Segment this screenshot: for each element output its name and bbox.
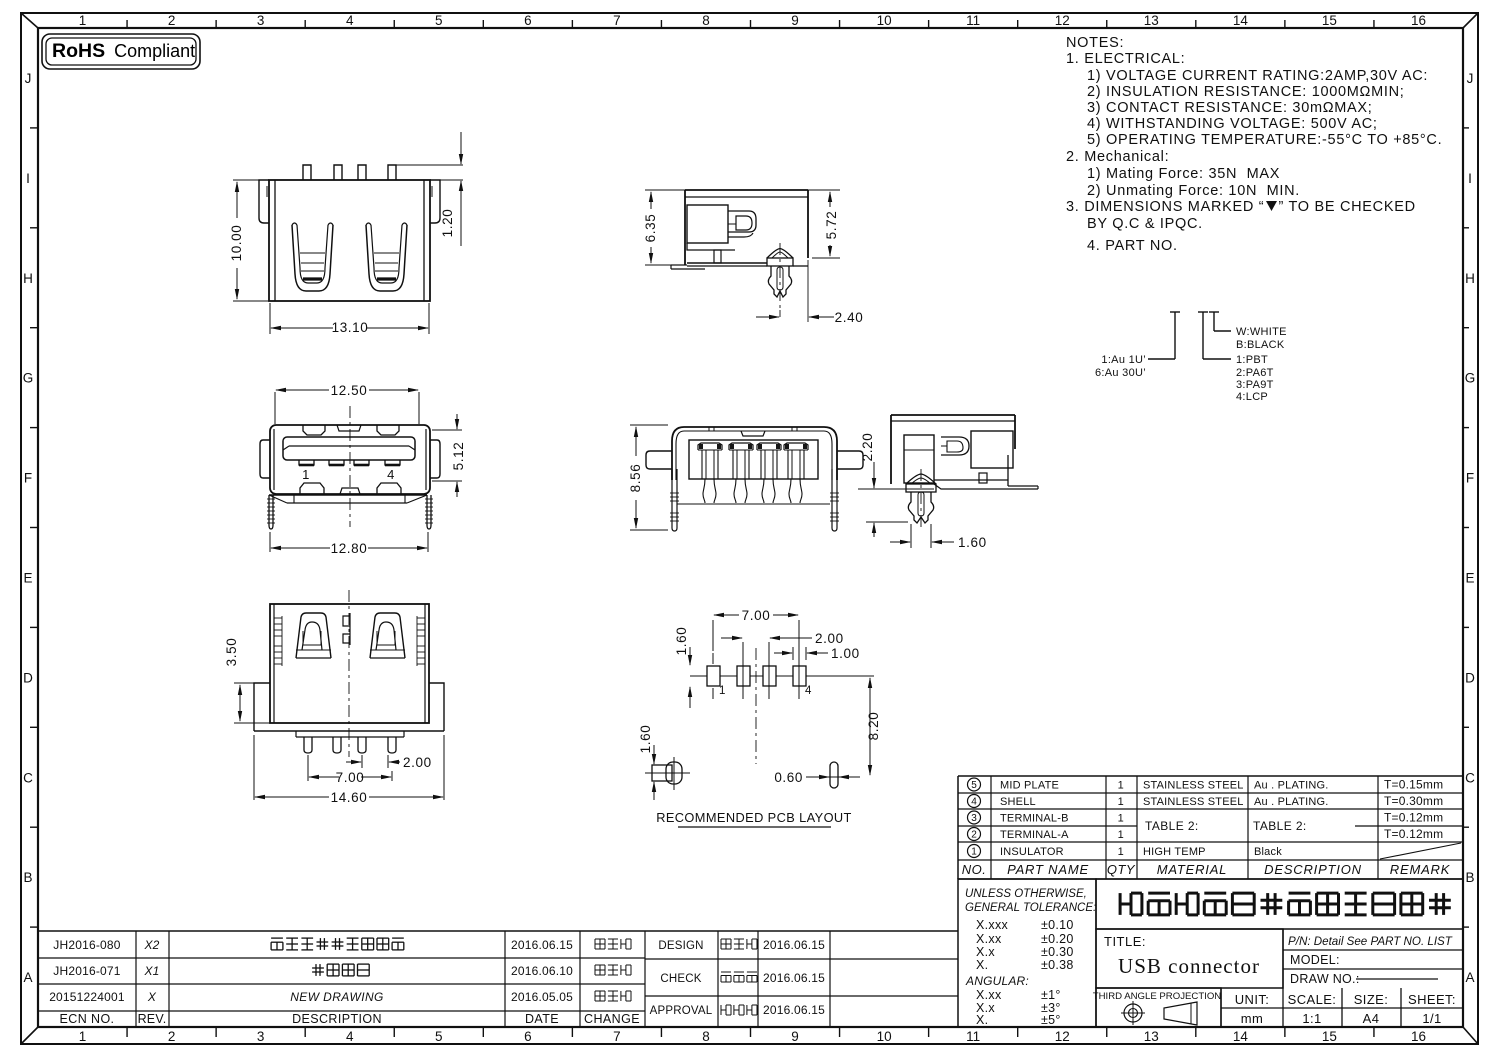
svg-text:BY Q.C & IPQC.: BY Q.C & IPQC. (1087, 216, 1203, 232)
svg-text:7: 7 (613, 1029, 621, 1044)
svg-text:NOTES:: NOTES: (1066, 35, 1124, 51)
svg-text:14.60: 14.60 (331, 790, 368, 805)
svg-text:1: 1 (971, 847, 977, 858)
svg-text:THIRD ANGLE PROJECTION: THIRD ANGLE PROJECTION (1093, 991, 1222, 1002)
svg-text:1.00: 1.00 (831, 646, 860, 661)
svg-text:2016.06.15: 2016.06.15 (763, 971, 825, 985)
svg-text:1: 1 (1118, 813, 1125, 825)
svg-text:14: 14 (1233, 13, 1249, 28)
svg-text:12.50: 12.50 (331, 383, 368, 398)
svg-text:2016.06.10: 2016.06.10 (511, 964, 573, 978)
svg-text:7: 7 (613, 13, 621, 28)
svg-text:20151224001: 20151224001 (49, 990, 125, 1004)
svg-text:0.60: 0.60 (774, 770, 803, 785)
svg-text:3. DIMENSIONS MARKED “ ” TO: 3. DIMENSIONS MARKED “ ” TO BE CHECKED (1066, 199, 1416, 215)
svg-text:5: 5 (435, 13, 443, 28)
svg-text:±0.38: ±0.38 (1041, 958, 1074, 972)
svg-text:B: B (23, 870, 32, 885)
svg-text:MODEL:: MODEL: (1290, 953, 1340, 967)
svg-text:4: 4 (387, 467, 395, 482)
svg-text:D: D (23, 670, 33, 685)
svg-text:1: 1 (1118, 846, 1125, 858)
svg-text:E: E (23, 570, 32, 585)
svg-text:15: 15 (1322, 1029, 1337, 1044)
svg-text:X1: X1 (143, 964, 159, 978)
svg-text:J: J (1467, 71, 1474, 86)
svg-text:10: 10 (877, 13, 892, 28)
svg-text:SCALE:: SCALE: (1288, 992, 1337, 1007)
svg-text:16: 16 (1411, 1029, 1426, 1044)
svg-text:GENERAL TOLERANCE:: GENERAL TOLERANCE: (965, 902, 1096, 914)
svg-text:8: 8 (702, 1029, 710, 1044)
svg-text:DATE: DATE (525, 1012, 559, 1026)
svg-text:2.40: 2.40 (835, 310, 864, 325)
svg-text:1:1: 1:1 (1302, 1011, 1321, 1026)
svg-text:1: 1 (302, 467, 310, 482)
svg-text:2: 2 (971, 830, 977, 841)
svg-text:±0.30: ±0.30 (1041, 945, 1074, 959)
svg-text:MID PLATE: MID PLATE (1000, 780, 1059, 792)
svg-text:SHELL: SHELL (1000, 796, 1036, 808)
svg-text:E: E (1465, 570, 1474, 585)
svg-text:±5°: ±5° (1041, 1013, 1061, 1027)
svg-text:4: 4 (346, 1029, 354, 1044)
svg-text:NO.: NO. (962, 862, 987, 877)
svg-text:REMARK: REMARK (1390, 862, 1451, 877)
svg-text:T=0.15mm: T=0.15mm (1384, 778, 1443, 792)
svg-text:4: 4 (805, 685, 812, 697)
svg-text:APPROVAL: APPROVAL (650, 1005, 713, 1017)
svg-text:3.50: 3.50 (224, 638, 239, 667)
svg-text:2.00: 2.00 (815, 631, 844, 646)
svg-text:I: I (26, 171, 30, 186)
svg-text:2.00: 2.00 (403, 755, 432, 770)
svg-text:±1°: ±1° (1041, 988, 1061, 1002)
svg-text:C: C (1465, 770, 1475, 785)
svg-text:X.: X. (976, 958, 988, 972)
svg-text:6: 6 (524, 1029, 532, 1044)
svg-text:3: 3 (257, 13, 265, 28)
svg-text:SIZE:: SIZE: (1354, 992, 1389, 1007)
svg-text:11: 11 (966, 1029, 980, 1044)
svg-text:P/N: Detail See PART NO. LIST: P/N: Detail See PART NO. LIST (1288, 935, 1453, 948)
svg-text:4: 4 (971, 797, 977, 808)
svg-text:DRAW NO.:: DRAW NO.: (1290, 972, 1360, 986)
svg-text:DESCRIPTION: DESCRIPTION (292, 1012, 382, 1026)
svg-text:USB connector: USB connector (1118, 954, 1260, 978)
svg-text:7.00: 7.00 (742, 608, 771, 623)
svg-text:X.: X. (976, 1013, 988, 1027)
svg-text:X.x: X.x (976, 945, 995, 959)
svg-text:1. ELECTRICAL:: 1. ELECTRICAL: (1066, 51, 1185, 67)
svg-text:mm: mm (1241, 1011, 1263, 1026)
svg-text:6: 6 (524, 13, 532, 28)
svg-text:A: A (23, 970, 32, 985)
svg-text:1: 1 (1118, 796, 1125, 808)
svg-text:J: J (25, 71, 32, 86)
svg-text:RoHSCompliant: RoHSCompliant (52, 40, 195, 62)
svg-text:X.xxx: X.xxx (976, 918, 1009, 932)
svg-text:Au . PLATING.: Au . PLATING. (1254, 796, 1329, 808)
svg-text:1:Au 1U’: 1:Au 1U’ (1101, 354, 1146, 366)
svg-text:T=0.30mm: T=0.30mm (1384, 794, 1443, 808)
svg-text:2. Mechanical:: 2. Mechanical: (1066, 149, 1169, 165)
svg-text:12: 12 (1055, 13, 1070, 28)
svg-text:7.00: 7.00 (336, 770, 365, 785)
svg-text:2) Unmating Force: 10N MIN.: 2) Unmating Force: 10N MIN. (1087, 183, 1300, 199)
svg-text:Au . PLATING.: Au . PLATING. (1254, 780, 1329, 792)
svg-text:X: X (147, 990, 157, 1004)
svg-text:F: F (1466, 471, 1474, 486)
svg-text:5.12: 5.12 (451, 442, 466, 471)
svg-text:9: 9 (791, 1029, 799, 1044)
svg-text:1) VOLTAGE CURRENT RATING:2AMP: 1) VOLTAGE CURRENT RATING:2AMP,30V AC: (1087, 68, 1428, 84)
svg-text:2016.06.15: 2016.06.15 (763, 1003, 825, 1017)
svg-text:10: 10 (877, 1029, 892, 1044)
svg-text:1: 1 (1118, 780, 1125, 792)
svg-text:T=0.12mm: T=0.12mm (1384, 811, 1443, 825)
svg-text:8.56: 8.56 (628, 464, 643, 493)
svg-text:4) WITHSTANDING VOLTAGE: 500V: 4) WITHSTANDING VOLTAGE: 500V AC; (1087, 116, 1378, 132)
svg-text:H: H (23, 271, 33, 286)
svg-text:Black: Black (1254, 846, 1282, 858)
svg-text:3: 3 (257, 1029, 265, 1044)
svg-text:TABLE 2:: TABLE 2: (1145, 819, 1199, 833)
svg-text:STAINLESS STEEL: STAINLESS STEEL (1143, 780, 1244, 792)
svg-text:TITLE:: TITLE: (1104, 934, 1146, 949)
svg-text:X.xx: X.xx (976, 932, 1002, 946)
svg-text:9: 9 (791, 13, 799, 28)
svg-text:14: 14 (1233, 1029, 1249, 1044)
svg-text:16: 16 (1411, 13, 1426, 28)
svg-text:10.00: 10.00 (229, 225, 244, 262)
svg-text:I: I (1468, 171, 1472, 186)
svg-text:RECOMMENDED PCB LAYOUT: RECOMMENDED PCB LAYOUT (656, 810, 852, 825)
svg-text:±0.10: ±0.10 (1041, 918, 1074, 932)
svg-text:6:Au 30U’: 6:Au 30U’ (1095, 367, 1146, 379)
svg-text:4: 4 (346, 13, 354, 28)
svg-text:1/1: 1/1 (1422, 1011, 1441, 1026)
svg-text:5) OPERATING TEMPERATURE:-55°C: 5) OPERATING TEMPERATURE:-55°C TO +85°C. (1087, 132, 1442, 148)
svg-text:PART NAME: PART NAME (1007, 862, 1089, 877)
svg-text:2016.06.15: 2016.06.15 (511, 938, 573, 952)
svg-text:DESCRIPTION: DESCRIPTION (1264, 862, 1362, 877)
svg-text:CHECK: CHECK (660, 973, 701, 985)
svg-text:1.60: 1.60 (958, 535, 987, 550)
svg-text:INSULATOR: INSULATOR (1000, 846, 1064, 858)
svg-text:13: 13 (1144, 1029, 1159, 1044)
svg-text:13.10: 13.10 (332, 320, 369, 335)
svg-text:CHANGE: CHANGE (584, 1012, 640, 1026)
svg-text:ECN NO.: ECN NO. (60, 1012, 115, 1026)
svg-text:SHEET:: SHEET: (1408, 992, 1456, 1007)
svg-text:5: 5 (971, 780, 977, 791)
svg-text:2.20: 2.20 (860, 433, 875, 462)
svg-text:3) CONTACT RESISTANCE: 30mΩMAX: 3) CONTACT RESISTANCE: 30mΩMAX; (1087, 100, 1373, 116)
svg-text:T=0.12mm: T=0.12mm (1384, 827, 1443, 841)
svg-text:G: G (1465, 371, 1476, 386)
svg-text:F: F (24, 471, 32, 486)
svg-text:UNLESS OTHERWISE,: UNLESS OTHERWISE, (965, 888, 1087, 900)
svg-text:C: C (23, 770, 33, 785)
svg-text:2: 2 (168, 1029, 176, 1044)
svg-text:2016.06.15: 2016.06.15 (763, 938, 825, 952)
svg-text:2:PA6T: 2:PA6T (1236, 367, 1274, 379)
svg-text:1.20: 1.20 (440, 209, 455, 238)
svg-text:A: A (1465, 970, 1474, 985)
svg-text:D: D (1465, 670, 1475, 685)
svg-text:TABLE 2:: TABLE 2: (1253, 819, 1307, 833)
svg-text:X2: X2 (143, 938, 159, 952)
svg-text:A4: A4 (1363, 1011, 1380, 1026)
svg-text:2: 2 (168, 13, 176, 28)
svg-text:UNIT:: UNIT: (1235, 992, 1270, 1007)
svg-text:4:LCP: 4:LCP (1236, 391, 1268, 403)
svg-text:1:PBT: 1:PBT (1236, 354, 1268, 366)
svg-text:15: 15 (1322, 13, 1337, 28)
svg-text:±0.20: ±0.20 (1041, 932, 1074, 946)
svg-text:REV.: REV. (138, 1012, 167, 1026)
svg-text:HIGH TEMP: HIGH TEMP (1143, 846, 1206, 858)
svg-text:QTY: QTY (1107, 862, 1136, 877)
svg-text:MATERIAL: MATERIAL (1157, 862, 1227, 877)
svg-text:12.80: 12.80 (331, 541, 368, 556)
svg-text:B: B (1465, 870, 1474, 885)
svg-text:1.60: 1.60 (674, 627, 689, 656)
svg-text:JH2016-071: JH2016-071 (53, 964, 121, 978)
svg-text:ANGULAR:: ANGULAR: (965, 974, 1029, 988)
svg-text:8: 8 (702, 13, 710, 28)
svg-text:DESIGN: DESIGN (658, 940, 703, 952)
svg-text:STAINLESS STEEL: STAINLESS STEEL (1143, 796, 1244, 808)
svg-text:B:BLACK: B:BLACK (1236, 339, 1285, 351)
svg-text:2016.05.05: 2016.05.05 (511, 990, 573, 1004)
svg-text:5.72: 5.72 (824, 211, 839, 240)
svg-text:TERMINAL-B: TERMINAL-B (1000, 813, 1069, 825)
svg-text:W:WHITE: W:WHITE (1236, 326, 1287, 338)
svg-text:5: 5 (435, 1029, 443, 1044)
svg-text:TERMINAL-A: TERMINAL-A (1000, 829, 1069, 841)
svg-text:4. PART NO.: 4. PART NO. (1087, 238, 1178, 254)
svg-text:2) INSULATION RESISTANCE: 1000: 2) INSULATION RESISTANCE: 1000MΩMIN; (1087, 84, 1405, 100)
svg-text:1) Mating Force: 35N MAX: 1) Mating Force: 35N MAX (1087, 166, 1280, 182)
svg-text:3:PA9T: 3:PA9T (1236, 379, 1274, 391)
svg-text:12: 12 (1055, 1029, 1070, 1044)
svg-text:1: 1 (79, 1029, 87, 1044)
svg-text:JH2016-080: JH2016-080 (53, 938, 121, 952)
svg-text:1.60: 1.60 (638, 725, 653, 754)
svg-text:3: 3 (971, 813, 977, 824)
svg-text:13: 13 (1144, 13, 1159, 28)
svg-text:X.xx: X.xx (976, 988, 1002, 1002)
svg-text:11: 11 (966, 13, 980, 28)
svg-text:1: 1 (79, 13, 87, 28)
svg-text:H: H (1465, 271, 1475, 286)
svg-text:6.35: 6.35 (643, 214, 658, 243)
svg-text:8.20: 8.20 (866, 712, 881, 741)
svg-text:1: 1 (719, 685, 726, 697)
svg-text:1: 1 (1118, 829, 1125, 841)
svg-text:G: G (23, 371, 34, 386)
svg-text:NEW DRAWING: NEW DRAWING (290, 990, 384, 1004)
